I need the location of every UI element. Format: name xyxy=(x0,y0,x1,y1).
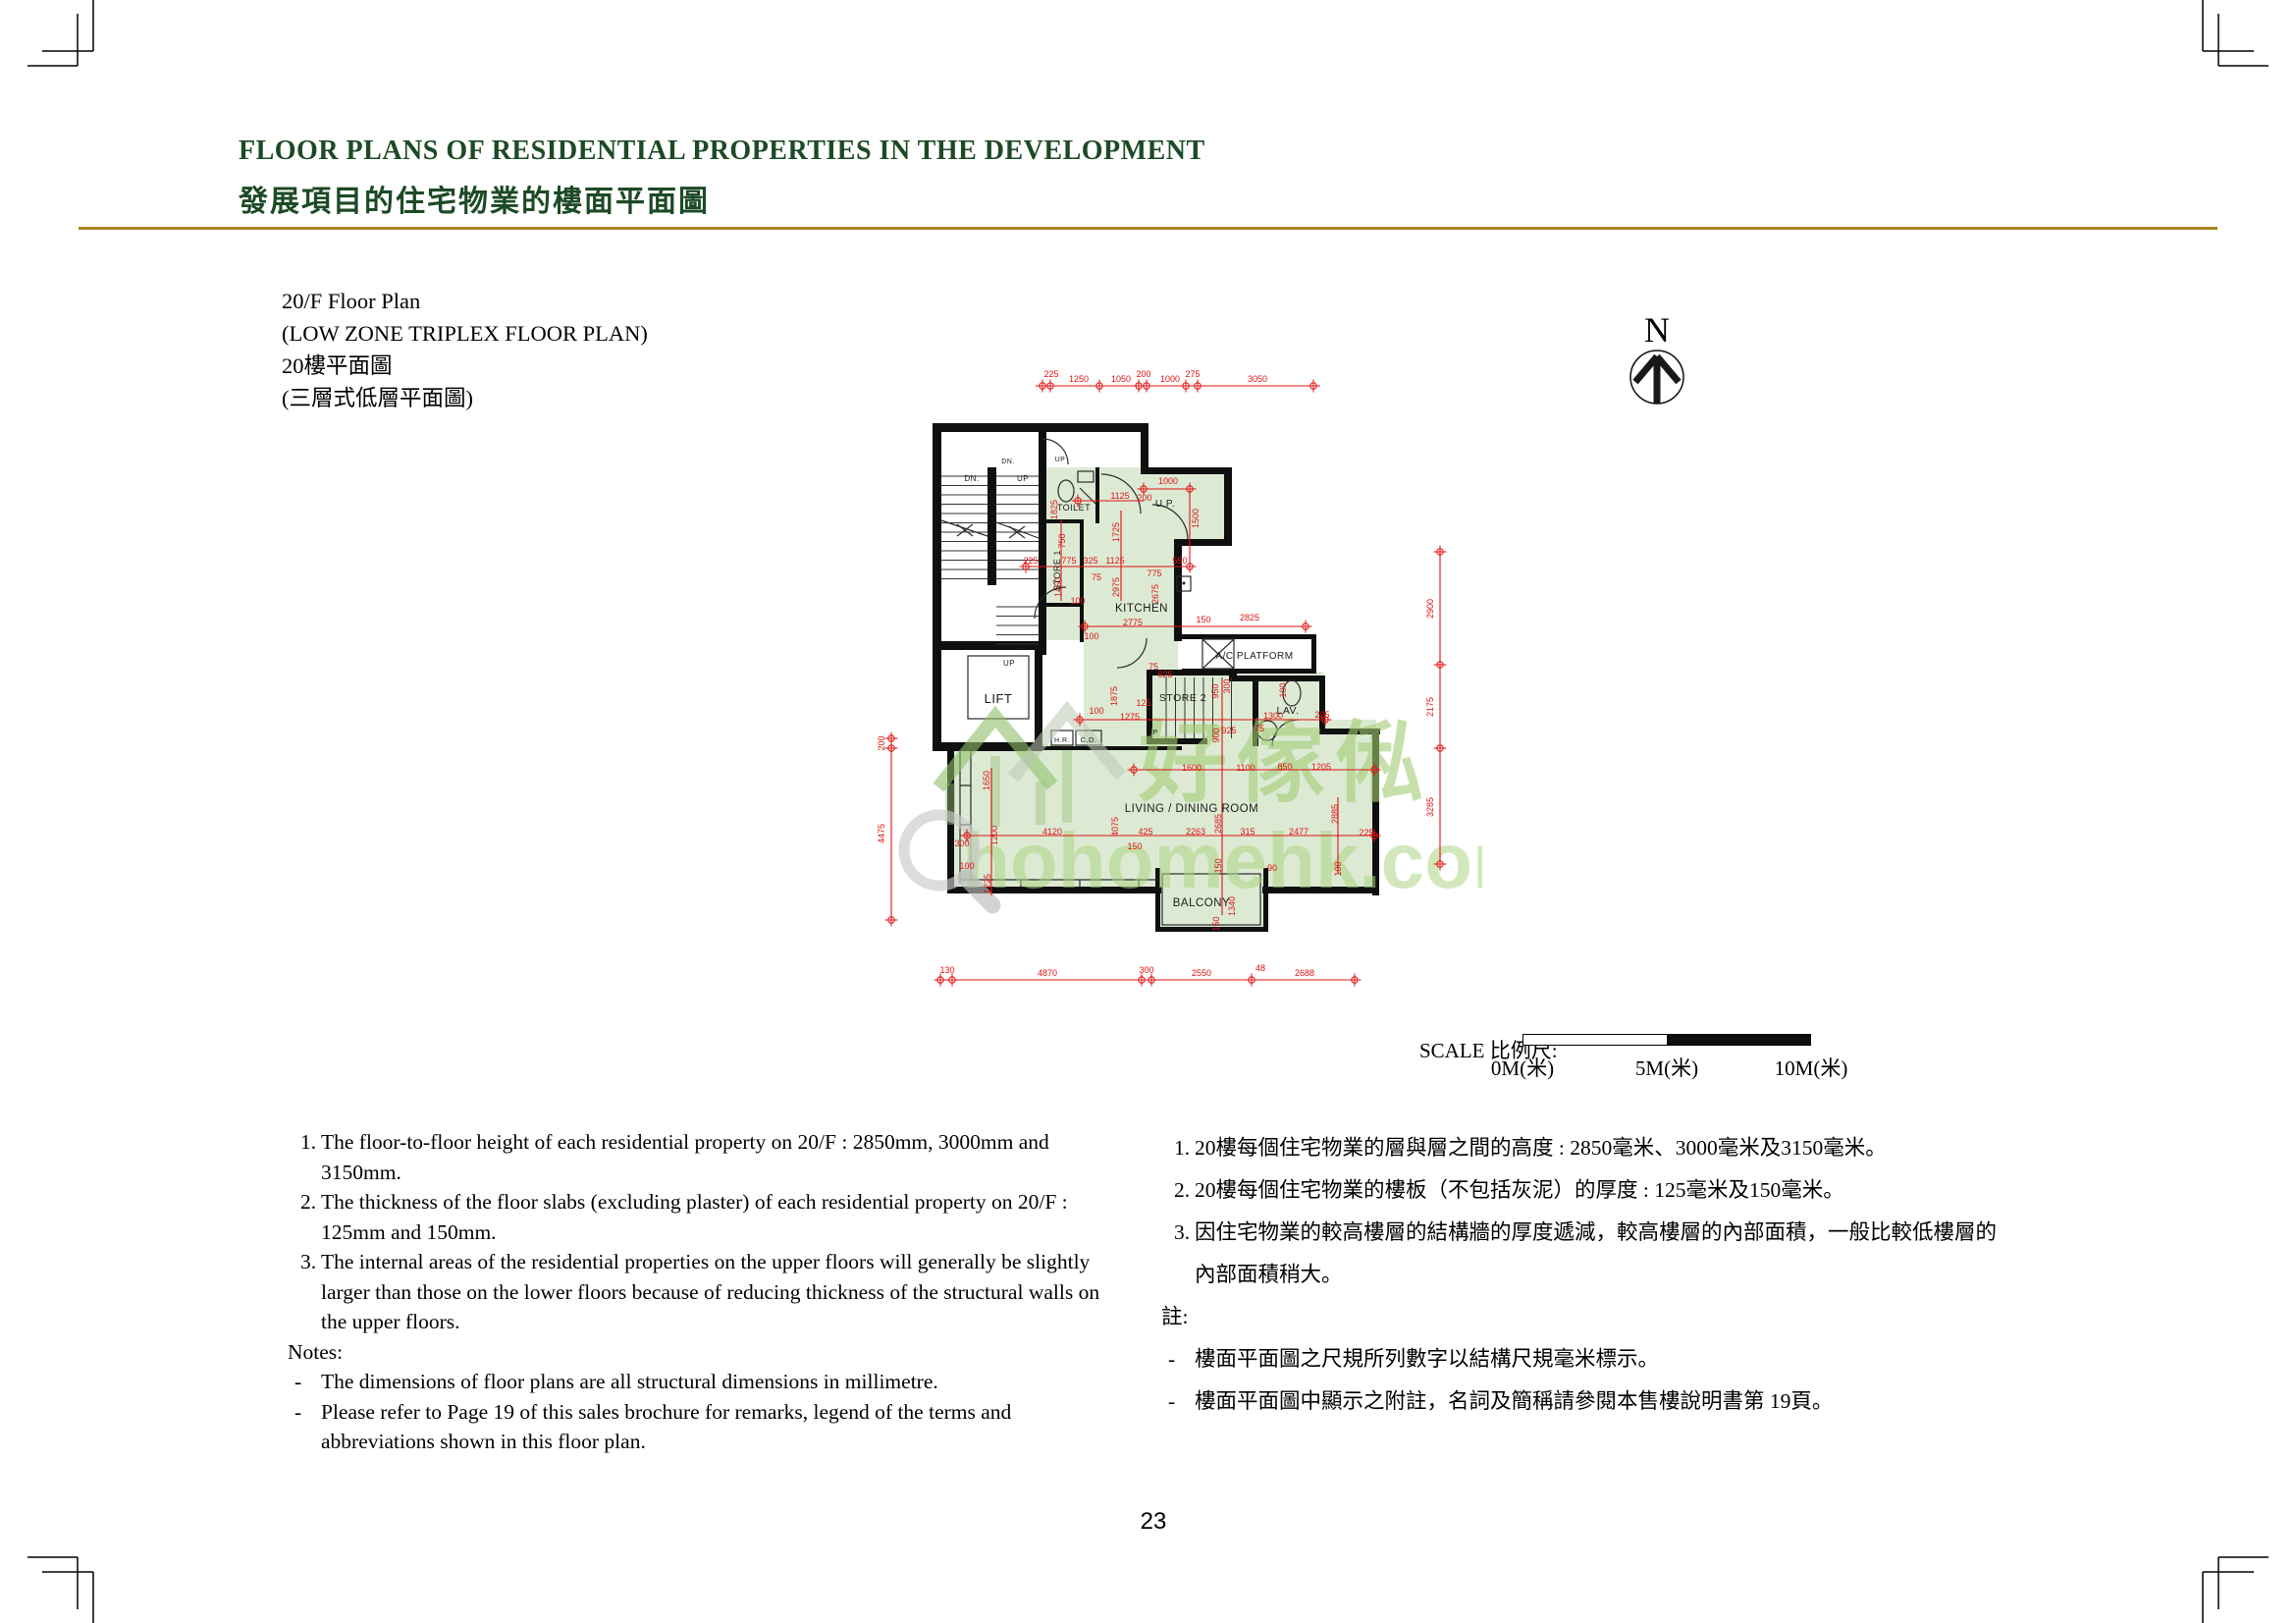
note-text: Please refer to Page 19 of this sales br… xyxy=(321,1397,1101,1457)
dimension-text: 300 xyxy=(1222,678,1232,693)
note-text: The internal areas of the residential pr… xyxy=(321,1247,1101,1337)
dimension-text: 1100 xyxy=(1236,763,1255,773)
floor-plan-title-line4: (三層式低層平面圖) xyxy=(282,382,648,414)
note-text: The dimensions of floor plans are all st… xyxy=(321,1367,1101,1397)
dimension-tick xyxy=(1349,974,1362,987)
dash-marker: - xyxy=(1161,1338,1195,1380)
dimension-text: 225 xyxy=(1043,369,1058,379)
dimension-text: 4475 xyxy=(877,824,886,843)
dimension-text: 150 xyxy=(1211,916,1221,931)
note-text: 樓面平面圖之尺規所列數字以結構尺規毫米標示。 xyxy=(1195,1338,2004,1380)
scale-tick-5m: 5M(米) xyxy=(1618,1053,1716,1082)
room-label: LIFT xyxy=(985,691,1013,706)
dimension-text: 2550 xyxy=(1192,968,1211,978)
note-item: 1. 20樓每個住宅物業的層與層之間的高度 : 2850毫米、3000毫米及31… xyxy=(1161,1127,2025,1169)
dimension-text: 750 xyxy=(1057,533,1067,548)
dimension-text: 1125 xyxy=(1110,491,1129,501)
dimension-text: 325 xyxy=(1083,556,1097,566)
dimension-text: 2975 xyxy=(1111,577,1121,597)
scale-bar xyxy=(1522,1034,1811,1046)
dimension-text: 1200 xyxy=(989,826,999,845)
dimension-text: 2775 xyxy=(1123,618,1143,627)
dash-marker: - xyxy=(1161,1380,1195,1423)
dimension-text: 3050 xyxy=(1248,374,1267,384)
note-text: 20樓每個住宅物業的樓板（不包括灰泥）的厚度 : 125毫米及150毫米。 xyxy=(1195,1169,2004,1212)
floor-plan-drawing: 好傢俬 hohomehk.com 22512501050200100027530… xyxy=(862,369,1482,1025)
dimension-text: 1125 xyxy=(1105,556,1124,566)
note-dash-item: - 樓面平面圖中顯示之附註，名詞及簡稱請參閱本售樓說明書第 19頁。 xyxy=(1161,1380,2025,1423)
dimension-text: 950 xyxy=(1210,683,1220,698)
note-text: 因住宅物業的較高樓層的結構牆的厚度遞減，較高樓層的內部面積，一般比較低樓層的內部… xyxy=(1195,1212,2004,1296)
dash-marker: - xyxy=(288,1367,321,1397)
dimension-text: 150 xyxy=(1196,615,1210,624)
dimension-tick xyxy=(1246,974,1258,987)
floor-plan-title-line1: 20/F Floor Plan xyxy=(282,285,648,317)
note-text: 樓面平面圖中顯示之附註，名詞及簡稱請參閱本售樓說明書第 19頁。 xyxy=(1195,1380,2004,1423)
page-title-chinese: 發展項目的住宅物業的樓面平面圖 xyxy=(239,177,710,220)
dimension-text: 75 xyxy=(1148,662,1158,672)
dimension-text: 225 xyxy=(1314,710,1329,720)
room-label: DN. xyxy=(1001,459,1015,465)
dimension-text: 775 xyxy=(1061,556,1076,566)
dimension-text: 4075 xyxy=(1110,817,1120,837)
dimension-text: 1000 xyxy=(1160,374,1180,384)
dimension-text: 125 xyxy=(1136,698,1150,708)
dimension-text: 4870 xyxy=(1038,968,1057,978)
page-number: 23 xyxy=(1124,1508,1183,1536)
floor-plan-title: 20/F Floor Plan (LOW ZONE TRIPLEX FLOOR … xyxy=(282,285,648,414)
dimension-text: 225 xyxy=(1023,556,1038,566)
dimension-tick xyxy=(1180,380,1193,393)
floor-plan-title-line3: 20樓平面圖 xyxy=(282,350,648,382)
dimension-text: 4120 xyxy=(1042,827,1062,837)
dimension-tick xyxy=(1434,742,1447,755)
dimension-text: 75 xyxy=(1092,572,1101,582)
note-item: 3. 因住宅物業的較高樓層的結構牆的厚度遞減，較高樓層的內部面積，一般比較低樓層… xyxy=(1161,1212,2025,1296)
room-label: UP xyxy=(1003,659,1015,668)
dimension-text: 150 xyxy=(1127,841,1142,851)
dimension-text: 2825 xyxy=(1240,613,1259,622)
notes-heading: 註: xyxy=(1161,1296,2025,1338)
dimension-text: 90 xyxy=(1267,863,1277,873)
room-label: STORE 1 xyxy=(1052,550,1062,591)
dimension-text: 925 xyxy=(1221,726,1236,735)
dimension-text: 1225 xyxy=(983,874,992,893)
note-text: The thickness of the floor slabs (exclud… xyxy=(321,1187,1101,1247)
dimension-tick xyxy=(1044,380,1057,393)
note-dash-item: - 樓面平面圖之尺規所列數字以結構尺規毫米標示。 xyxy=(1161,1338,2025,1380)
scale-bar-black-half xyxy=(1667,1035,1810,1045)
north-label: N xyxy=(1644,310,1670,350)
dimension-text: 100 xyxy=(1070,596,1085,606)
room-label: BALCONY xyxy=(1173,897,1230,909)
brochure-page: FLOOR PLANS OF RESIDENTIAL PROPERTIES IN… xyxy=(0,0,2296,1623)
dimension-text: 1205 xyxy=(1311,762,1331,772)
dimension-text: 315 xyxy=(1240,827,1255,837)
dimension-text: 1875 xyxy=(1109,686,1119,706)
dimension-text: 200 xyxy=(1136,369,1150,379)
dimension-text: 1500 xyxy=(1191,509,1201,528)
note-number: 3. xyxy=(1161,1212,1195,1254)
dimension-text: 1725 xyxy=(1111,522,1121,542)
dimension-text: 100 xyxy=(1278,682,1288,697)
scale-tick-10m: 10M(米) xyxy=(1762,1053,1860,1082)
dimension-tick xyxy=(885,914,898,927)
dimension-text: 2263 xyxy=(1186,827,1205,837)
room-label: H.R. xyxy=(1054,737,1070,744)
room-label: DN. xyxy=(964,474,979,483)
dimension-text: 75 xyxy=(1255,724,1264,733)
dimension-tick xyxy=(885,742,898,755)
room-label: TOILET xyxy=(1057,503,1091,513)
dimension-text: 48 xyxy=(1255,963,1265,973)
note-item: 3. The internal areas of the residential… xyxy=(288,1247,1117,1337)
dimension-text: 300 xyxy=(1139,965,1153,975)
room-label: LIVING / DINING ROOM xyxy=(1125,803,1259,815)
dimension-text: 200 xyxy=(1137,493,1151,503)
dimension-tick xyxy=(1434,659,1447,672)
room-label: UP xyxy=(1147,728,1157,736)
note-number: 2. xyxy=(288,1187,321,1217)
north-arrow-glyph xyxy=(1635,356,1679,404)
dimension-text: 1050 xyxy=(1111,374,1131,384)
room-label: LAV. xyxy=(1276,705,1299,717)
dimension-text: 2685 xyxy=(1213,814,1223,834)
dimension-text: 2885 xyxy=(1330,804,1340,824)
room-label: KITCHEN xyxy=(1115,603,1168,615)
room-label: C.D. xyxy=(1081,735,1097,744)
dimension-text: 1650 xyxy=(982,771,991,790)
dimension-text: 1250 xyxy=(1069,374,1089,384)
note-dash-item: - The dimensions of floor plans are all … xyxy=(288,1367,1117,1397)
note-dash-item: - Please refer to Page 19 of this sales … xyxy=(288,1397,1117,1457)
dimension-text: 2675 xyxy=(1150,584,1160,604)
room-label: UP xyxy=(1017,474,1029,483)
note-item: 1. The floor-to-floor height of each res… xyxy=(288,1127,1117,1187)
notes-english: 1. The floor-to-floor height of each res… xyxy=(288,1127,1117,1457)
note-text: The floor-to-floor height of each reside… xyxy=(321,1127,1101,1187)
notes-heading: Notes: xyxy=(288,1337,1117,1368)
dimension-text: 300 xyxy=(954,839,969,848)
dimension-tick xyxy=(934,974,947,987)
note-item: 2. 20樓每個住宅物業的樓板（不包括灰泥）的厚度 : 125毫米及150毫米。 xyxy=(1161,1169,2025,1212)
dimension-text: 200 xyxy=(877,735,886,750)
page-title: FLOOR PLANS OF RESIDENTIAL PROPERTIES IN… xyxy=(239,135,1205,167)
dimension-text: 775 xyxy=(1147,568,1161,578)
dimension-text: 425 xyxy=(1138,827,1152,837)
dimension-tick xyxy=(1141,380,1153,393)
dimension-text: 2175 xyxy=(1425,697,1435,717)
dimension-text: 1000 xyxy=(1158,476,1178,486)
dimension-text: 2477 xyxy=(1289,827,1308,837)
dimension-tick xyxy=(1094,380,1106,393)
room-label: STORE 2 xyxy=(1159,692,1206,704)
note-number: 2. xyxy=(1161,1169,1195,1212)
note-text: 20樓每個住宅物業的層與層之間的高度 : 2850毫米、3000毫米及3150毫… xyxy=(1195,1127,2004,1169)
dimension-text: 850 xyxy=(1277,762,1292,772)
dimension-tick xyxy=(1308,380,1320,393)
dimension-text: 2900 xyxy=(1425,599,1435,619)
dash-marker: - xyxy=(288,1397,321,1428)
dimension-text: 2688 xyxy=(1295,968,1314,978)
dimension-text: 275 xyxy=(1185,369,1200,379)
dimension-text: 1275 xyxy=(1120,712,1140,722)
dimension-tick xyxy=(946,974,959,987)
dimension-text: 625 xyxy=(1157,670,1172,679)
dimension-text: 225 xyxy=(1359,828,1373,838)
room-label: UP xyxy=(1055,457,1066,463)
room-label: DN. xyxy=(1017,642,1032,651)
room-label: A/C PLATFORM xyxy=(1215,651,1293,662)
notes-chinese: 1. 20樓每個住宅物業的層與層之間的高度 : 2850毫米、3000毫米及31… xyxy=(1161,1127,2025,1423)
dimension-text: 100 xyxy=(1089,706,1103,716)
header-divider xyxy=(79,227,2217,230)
note-number: 1. xyxy=(288,1127,321,1158)
note-number: 1. xyxy=(1161,1127,1195,1169)
dimension-text: 3285 xyxy=(1425,797,1435,817)
dimension-text: 130 xyxy=(939,965,954,975)
dimension-text: 150 xyxy=(1213,858,1223,873)
room-label: U.P. xyxy=(1155,499,1175,510)
dimension-text: 100 xyxy=(1333,861,1343,876)
dimension-text: 100 xyxy=(1084,631,1098,641)
dimension-text: 100 xyxy=(959,861,974,871)
dimension-tick xyxy=(1192,380,1204,393)
note-number: 3. xyxy=(288,1247,321,1277)
dimension-text: 900 xyxy=(1211,728,1221,742)
dimension-text: 1600 xyxy=(1182,763,1201,773)
dimension-tick xyxy=(1300,621,1312,633)
note-item: 2. The thickness of the floor slabs (exc… xyxy=(288,1187,1117,1247)
dimension-text: 550 xyxy=(1172,556,1187,566)
dimension-tick xyxy=(1434,546,1447,559)
scale-tick-0m: 0M(米) xyxy=(1473,1053,1572,1082)
dimension-tick xyxy=(1146,974,1158,987)
north-arrow: N xyxy=(1620,310,1694,412)
floor-plan-title-line2: (LOW ZONE TRIPLEX FLOOR PLAN) xyxy=(282,317,648,350)
